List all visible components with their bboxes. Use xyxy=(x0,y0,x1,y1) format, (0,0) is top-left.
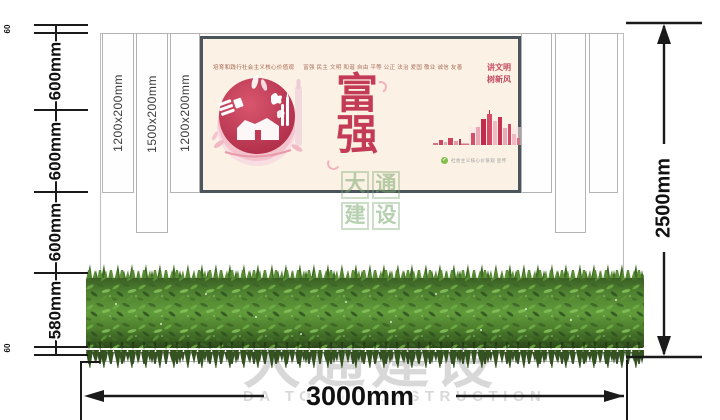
arrowhead-left-icon xyxy=(84,390,104,402)
arrowhead-right-icon xyxy=(604,390,624,402)
column-size-label: 1500x200mm xyxy=(145,75,159,153)
dim-label-height-total: 2500mm xyxy=(652,158,674,238)
signage-design-drawing: 1200x200mm 1500x200mm 1200x200mm 培育和践行社会… xyxy=(0,0,720,420)
dim-label-left-2: 600mm xyxy=(45,122,64,181)
panel-corner-slogan: 讲文明 树新风 xyxy=(487,62,511,86)
house-door-shape xyxy=(255,130,261,140)
pale-tower-shape xyxy=(295,86,302,146)
watermark-bottom-en: DA TONG CONSTRUCTION xyxy=(243,388,546,405)
dim-label-left-4: 580mm xyxy=(45,281,64,340)
watermark-center-char: 设 xyxy=(372,202,400,230)
column-strip-left-2: 1500x200mm xyxy=(136,33,168,233)
hedge-illustration xyxy=(86,262,644,368)
dim-label-left-3: 600mm xyxy=(45,203,64,262)
pale-tower-top-shape xyxy=(297,79,301,89)
papercut-circle-illustration xyxy=(207,66,307,166)
column-strip-right-1 xyxy=(521,33,552,193)
watermark-center: 大 通 建 设 xyxy=(341,171,400,230)
column-strip-left-1: 1200x200mm xyxy=(102,33,134,193)
arrowhead-up-icon xyxy=(657,24,671,44)
credit-text: 社会主义核心价值观 宣传 xyxy=(451,158,507,164)
core-values-text: 富强 民主 文明 和谐 自由 平等 公正 法治 爱国 敬业 诚信 友善 xyxy=(303,65,462,71)
watermark-center-char: 建 xyxy=(341,202,369,230)
column-strip-right-3 xyxy=(589,33,618,193)
display-panel: 培育和践行社会主义核心价值观富强 民主 文明 和谐 自由 平等 公正 法治 爱国… xyxy=(200,36,521,193)
arrowhead-down-icon xyxy=(657,336,671,356)
dim-left-chain xyxy=(34,25,88,355)
green-badge-icon: ✓ xyxy=(441,157,448,164)
dim-label-left-0: 60 xyxy=(3,24,12,33)
dim-label-left-5: 60 xyxy=(3,343,12,352)
column-strip-right-2 xyxy=(555,33,586,233)
watermark-center-char: 大 xyxy=(341,171,369,199)
headline-fuqiang: 富强 xyxy=(334,73,380,155)
column-size-label: 1200x200mm xyxy=(111,74,125,152)
column-size-label: 1200x200mm xyxy=(178,74,192,152)
corner-slogan-line2: 树新风 xyxy=(487,74,511,86)
column-strip-left-3: 1200x200mm xyxy=(170,33,200,193)
skyline-illustration xyxy=(433,107,521,149)
corner-slogan-line1: 讲文明 xyxy=(487,62,511,74)
credit-row: ✓ 社会主义核心价值观 宣传 xyxy=(441,157,507,164)
dim-label-left-1: 600mm xyxy=(45,42,64,101)
watermark-center-char: 通 xyxy=(372,171,400,199)
